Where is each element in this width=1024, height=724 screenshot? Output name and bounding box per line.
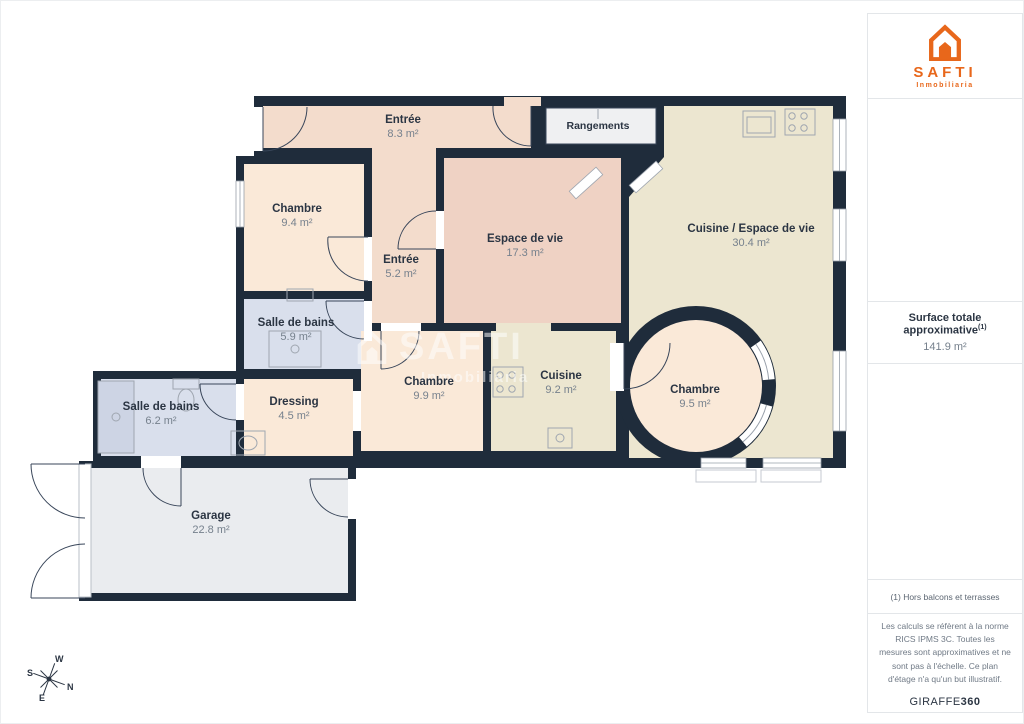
surface-total-block: Surface totale approximative(1) 141.9 m² xyxy=(868,302,1022,364)
room-chambre-94 xyxy=(244,164,364,291)
footnote-block: (1) Hors balcons et terrasses xyxy=(868,580,1022,614)
room-entree-top xyxy=(263,106,531,148)
info-sidebar: SAFTI Inmobiliaria Surface totale approx… xyxy=(867,13,1023,713)
room-chambre-95 xyxy=(630,320,762,452)
compass-n: N xyxy=(67,682,74,692)
room-sdb-59 xyxy=(244,299,364,369)
compass-rose: W S N E xyxy=(15,643,87,715)
sidebar-spacer xyxy=(868,364,1022,580)
room-rangements xyxy=(546,108,656,144)
logo-block: SAFTI Inmobiliaria xyxy=(868,14,1022,99)
surface-total-title: Surface totale approximative(1) xyxy=(868,312,1022,337)
legal-block: Les calculs se réfèrent à la norme RICS … xyxy=(868,614,1022,714)
floorplan-drawing xyxy=(1,1,861,724)
compass-w: W xyxy=(55,654,64,664)
terrace-outline xyxy=(696,470,821,482)
compass-e: E xyxy=(39,693,45,703)
shower-icon xyxy=(98,381,134,453)
surface-total-value: 141.9 m² xyxy=(923,341,966,353)
logo-subtext: Inmobiliaria xyxy=(916,82,973,89)
room-dressing xyxy=(244,379,353,456)
safti-house-icon xyxy=(924,23,966,61)
room-chambre-99 xyxy=(361,331,483,451)
logo-text: SAFTI xyxy=(913,64,976,81)
room-entree-52 xyxy=(372,148,436,323)
surface-footnote-marker: (1) xyxy=(978,324,987,331)
giraffe360-credit: GIRAFFE360 xyxy=(909,696,980,708)
legal-text: Les calculs se réfèrent à la norme RICS … xyxy=(878,620,1012,686)
room-garage xyxy=(91,468,348,593)
compass-s: S xyxy=(27,668,33,678)
room-espace-de-vie xyxy=(444,158,621,323)
room-floors xyxy=(91,106,833,593)
footnote-text: (1) Hors balcons et terrasses xyxy=(890,592,999,602)
floorplan-page: SAFTI Inmobiliaria Entrée 8.3 m² Rangeme… xyxy=(0,0,1024,724)
sidebar-spacer xyxy=(868,99,1022,302)
